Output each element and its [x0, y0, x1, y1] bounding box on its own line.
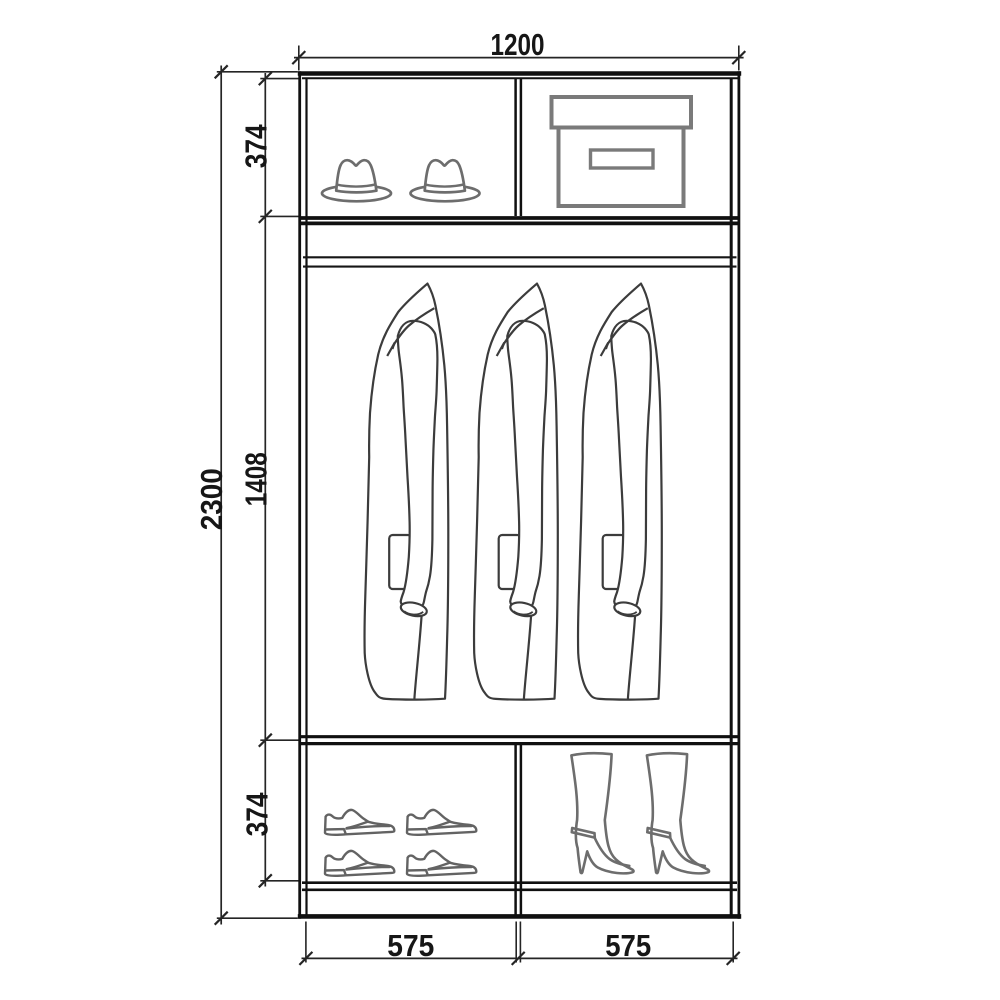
- svg-text:374: 374: [239, 124, 274, 169]
- svg-text:1200: 1200: [491, 27, 545, 62]
- svg-text:374: 374: [239, 792, 274, 837]
- svg-text:2300: 2300: [194, 468, 229, 530]
- svg-text:575: 575: [605, 928, 651, 963]
- svg-text:575: 575: [387, 928, 434, 963]
- svg-text:1408: 1408: [239, 452, 274, 506]
